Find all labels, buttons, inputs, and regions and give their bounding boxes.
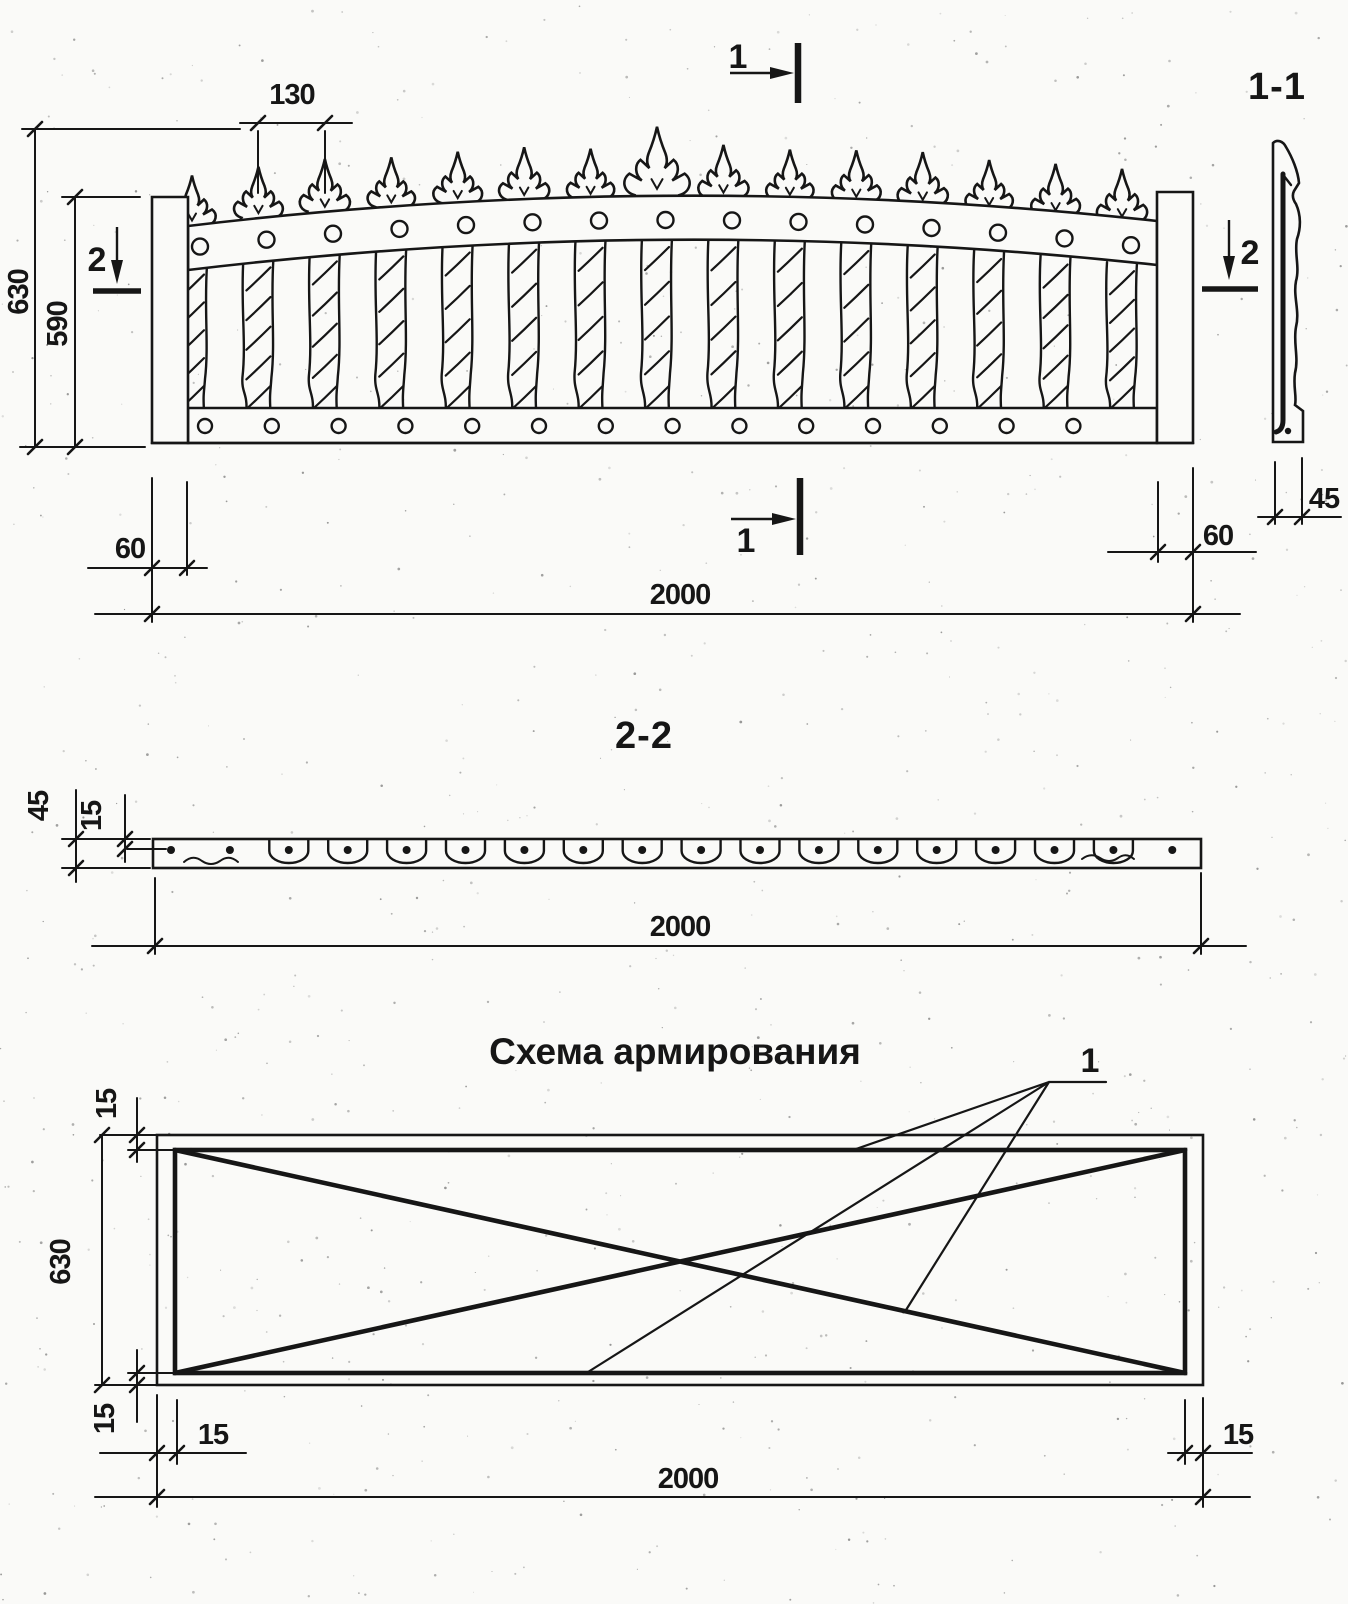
dim-15-horiz-left: 15 [198, 1419, 229, 1451]
dim-2000-section-2-2: 2000 [650, 911, 711, 943]
rail-hole [732, 419, 746, 433]
baluster [641, 238, 672, 411]
fence-panel-elevation [152, 127, 1193, 443]
rail-hole [398, 419, 412, 433]
leader-lines [588, 1082, 1106, 1372]
rail-hole [666, 419, 680, 433]
rail-hole [857, 217, 873, 233]
rebar-dot [697, 846, 705, 854]
rail-hole [265, 419, 279, 433]
rebar-dot [403, 846, 411, 854]
rail-hole [1000, 419, 1014, 433]
baluster [707, 238, 738, 411]
dim-15-top-left: 15 [91, 1088, 123, 1119]
rail-hole [465, 419, 479, 433]
drawing-sheet: 130 630 590 60 2000 60 1 1 2 2 1-1 45 2-… [0, 0, 1348, 1604]
dim-45-section-1-1: 45 [1309, 483, 1340, 515]
rail-hole [591, 213, 607, 229]
title-reinforcement: Схема армирования [489, 1031, 861, 1072]
rail-hole [392, 221, 408, 237]
rebar-dot [1168, 846, 1176, 854]
rail-hole [1123, 237, 1139, 253]
technical-drawing: 130 630 590 60 2000 60 1 1 2 2 1-1 45 2-… [0, 0, 1348, 1604]
section-1-1-view [1258, 141, 1341, 524]
dim-130: 130 [269, 79, 314, 111]
rail-hole [990, 225, 1006, 241]
rail-hole [325, 226, 341, 242]
baluster [1106, 262, 1137, 411]
rail-hole [198, 419, 212, 433]
title-section-2-2: 2-2 [615, 715, 673, 757]
baluster [375, 247, 406, 411]
rail-hole [332, 419, 346, 433]
dim-15-bottom-left-vert: 15 [89, 1403, 121, 1434]
rail-hole [791, 214, 807, 230]
label-section-2-right: 2 [1241, 234, 1260, 272]
rail-hole [724, 212, 740, 228]
rebar-dot [520, 846, 528, 854]
rail-hole [924, 220, 940, 236]
baluster [242, 258, 273, 411]
rail-hole [458, 217, 474, 233]
dim-2000-top: 2000 [650, 579, 711, 611]
rail-hole [259, 232, 275, 248]
rebar-dot [1051, 846, 1059, 854]
dim-590: 590 [42, 301, 74, 346]
label-section-1-bottom: 1 [737, 522, 756, 560]
dim-630-top: 630 [3, 269, 35, 314]
rebar-dot [815, 846, 823, 854]
baluster [1039, 256, 1070, 411]
rebar-frame-and-diagonals [175, 1150, 1185, 1373]
baluster [508, 241, 539, 411]
rebar-dot [933, 846, 941, 854]
rail-hole [658, 212, 674, 228]
rail-hole [933, 419, 947, 433]
label-rebar-1: 1 [1081, 1042, 1100, 1080]
dim-2000-bottom: 2000 [658, 1463, 719, 1495]
dim-60-left: 60 [115, 533, 145, 565]
title-section-1-1: 1-1 [1248, 66, 1306, 108]
baluster [840, 242, 871, 411]
left-stile [152, 197, 188, 443]
rebar-dot [638, 846, 646, 854]
rail-hole [1057, 230, 1073, 246]
dim-15-section-2-2: 15 [76, 800, 108, 831]
rail-hole [866, 419, 880, 433]
label-section-1-top: 1 [729, 38, 748, 76]
rebar-dot [874, 846, 882, 854]
rebar-end-dot [1285, 428, 1291, 434]
right-stile [1157, 192, 1193, 443]
label-section-2-left: 2 [88, 241, 107, 279]
rail-hole [192, 239, 208, 255]
rebar-dot [167, 846, 175, 854]
twisted-balusters [176, 238, 1137, 411]
reinforcement-scheme [95, 1082, 1252, 1507]
baluster [973, 250, 1004, 411]
baluster [574, 239, 605, 411]
rebar-dot [226, 846, 234, 854]
baluster [907, 246, 938, 411]
rail-hole [799, 419, 813, 433]
rail-hole [532, 419, 546, 433]
rebar-dot [579, 846, 587, 854]
rebar-dot [756, 846, 764, 854]
rebar-dot [344, 846, 352, 854]
rebar-dot [285, 846, 293, 854]
finial-icon [624, 127, 689, 206]
baluster [774, 240, 805, 411]
dim-45-section-2-2: 45 [23, 790, 55, 821]
rebar-dot [992, 846, 1000, 854]
baluster [442, 243, 473, 411]
strip-outline [153, 839, 1201, 868]
rebar-dot [1109, 846, 1117, 854]
baluster [309, 252, 340, 411]
dim-60-right: 60 [1203, 520, 1233, 552]
rail-hole [525, 214, 541, 230]
rebar-dot [462, 846, 470, 854]
dim-15-horiz-right: 15 [1223, 1419, 1254, 1451]
section-profile [1273, 141, 1303, 442]
rail-hole [599, 419, 613, 433]
dim-630-bottom: 630 [45, 1239, 77, 1284]
rail-hole [1066, 419, 1080, 433]
